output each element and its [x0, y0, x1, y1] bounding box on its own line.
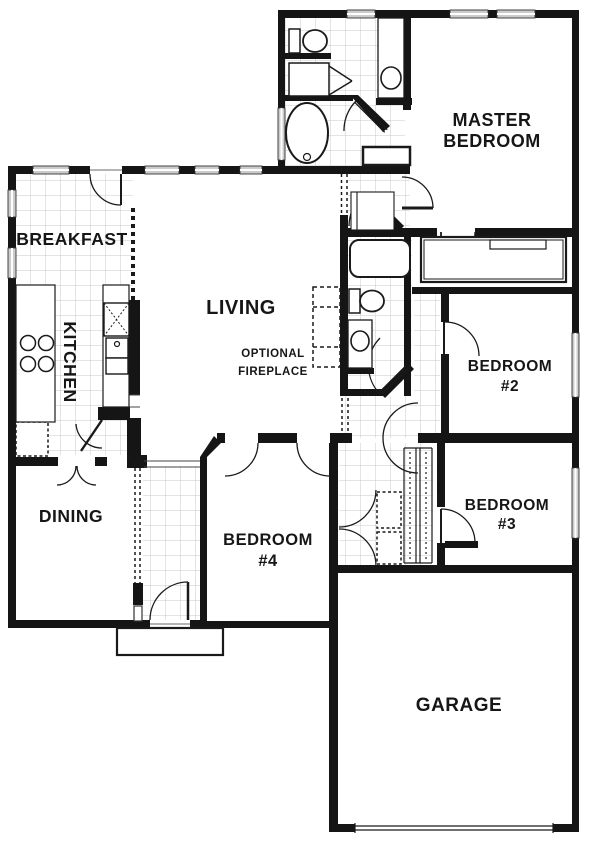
room-label-master-line2: BEDROOM — [443, 131, 541, 151]
wall-garage-bottom-right-stub — [553, 824, 579, 832]
window — [8, 190, 16, 217]
master-bath-vanity-sink-icon — [378, 18, 404, 98]
wall-hall-south-east — [418, 433, 572, 443]
wall-closet-south — [412, 287, 572, 294]
wall-kitchen-south — [127, 418, 141, 458]
room-label-bedroom2-line2: #2 — [501, 378, 519, 395]
bedroom4-door-opening-2 — [297, 433, 330, 443]
entry-rail-post — [133, 583, 143, 605]
pantry-dashed-box — [16, 422, 48, 456]
dining-double-door-arc-right — [77, 466, 96, 485]
master-closet-shelving — [421, 237, 566, 282]
wall-vanity-stub — [376, 98, 412, 105]
label-optional-fireplace-line2: FIREPLACE — [238, 366, 308, 378]
window — [497, 10, 535, 18]
wall-dining-north — [12, 457, 58, 466]
master-bath-toilet-icon — [289, 29, 327, 53]
window — [572, 468, 579, 538]
window — [8, 248, 16, 278]
dining-double-door-arc-left — [57, 466, 76, 485]
hall-bath-toilet-icon — [349, 289, 384, 313]
floor-plan-page: MASTER BEDROOM BREAKFAST KITCHEN LIVING … — [0, 0, 600, 849]
dining-double-door-opening — [58, 457, 95, 466]
floor-plan: MASTER BEDROOM BREAKFAST KITCHEN LIVING … — [0, 0, 600, 849]
wall-hallbath-vanity-stub — [348, 368, 374, 374]
window — [278, 108, 285, 160]
optional-fireplace-outline — [313, 287, 340, 367]
wall-right — [572, 10, 579, 832]
bedroom3-door-arc — [441, 509, 475, 543]
wall-dining-north-stub — [95, 457, 107, 466]
wall-bedroom2-west-top — [441, 294, 449, 322]
entry-rail-jamb — [134, 606, 142, 621]
bedroom4-door-arc-2 — [297, 443, 330, 476]
wall-bedroom2-west-bottom — [441, 354, 449, 438]
room-label-bedroom3-line2: #3 — [498, 516, 516, 533]
wall-garage-bottom-left-stub — [329, 824, 355, 832]
bedroom4-door-arc-1 — [225, 443, 258, 476]
wall-kitchen-stub — [98, 407, 130, 420]
south-hall-tile-floor — [345, 396, 419, 438]
window — [145, 166, 179, 174]
hall-bath-vanity-sink-icon — [348, 320, 372, 368]
room-label-kitchen: KITCHEN — [60, 321, 80, 402]
washer-dashed-box — [377, 492, 401, 528]
wall-hallbath-west — [340, 215, 348, 396]
linen-cabinet — [363, 147, 410, 165]
wall-kitchen-peninsula — [129, 300, 140, 395]
room-label-dining: DINING — [39, 506, 103, 526]
room-label-bedroom4-line1: BEDROOM — [223, 531, 313, 549]
wall-garage-top — [336, 565, 579, 573]
master-bath-tub-icon — [286, 103, 328, 163]
range-oven-icon — [106, 338, 128, 374]
closet-door-opening — [437, 228, 475, 237]
window — [450, 10, 488, 18]
vestibule-closet — [351, 192, 394, 230]
entry-hall-tile-floor — [143, 466, 200, 620]
window — [195, 166, 219, 174]
wall-left — [8, 166, 16, 628]
room-label-garage: GARAGE — [416, 695, 502, 716]
room-label-living: LIVING — [206, 297, 276, 319]
front-stoop — [117, 628, 223, 655]
window — [33, 166, 69, 174]
wall-toilet-nook — [281, 53, 331, 59]
bedroom4-door-opening-1 — [225, 433, 258, 443]
hall-bath-tub-icon — [350, 240, 410, 277]
wall-closet-north — [475, 228, 572, 237]
garage-door — [355, 823, 553, 833]
window — [240, 166, 262, 174]
label-optional-fireplace-line1: OPTIONAL — [241, 348, 304, 360]
room-label-bedroom4-line2: #4 — [258, 552, 278, 570]
window — [572, 333, 579, 397]
wall-bedroom3-west-bottom — [437, 543, 445, 565]
wall-garage-left — [329, 443, 338, 832]
wall-bedroom3-west-top — [437, 443, 445, 507]
room-label-breakfast: BREAKFAST — [16, 229, 127, 249]
room-label-master-line1: MASTER — [453, 110, 532, 130]
wall-bedroom3-stub — [445, 541, 478, 548]
window — [347, 10, 375, 18]
kitchen-counter-left — [16, 285, 55, 422]
room-label-bedroom3-line1: BEDROOM — [465, 497, 549, 514]
room-label-bedroom2-line1: BEDROOM — [468, 358, 552, 375]
kitchen-cased-opening — [129, 395, 140, 407]
wall-bedroom4-west — [200, 457, 207, 620]
wall-masterbath-south — [278, 166, 410, 174]
bedroom2-door-arc — [445, 322, 479, 356]
refrigerator-icon — [104, 303, 129, 336]
wall-hallbath-south — [340, 389, 384, 396]
dryer-dashed-box — [377, 532, 401, 564]
